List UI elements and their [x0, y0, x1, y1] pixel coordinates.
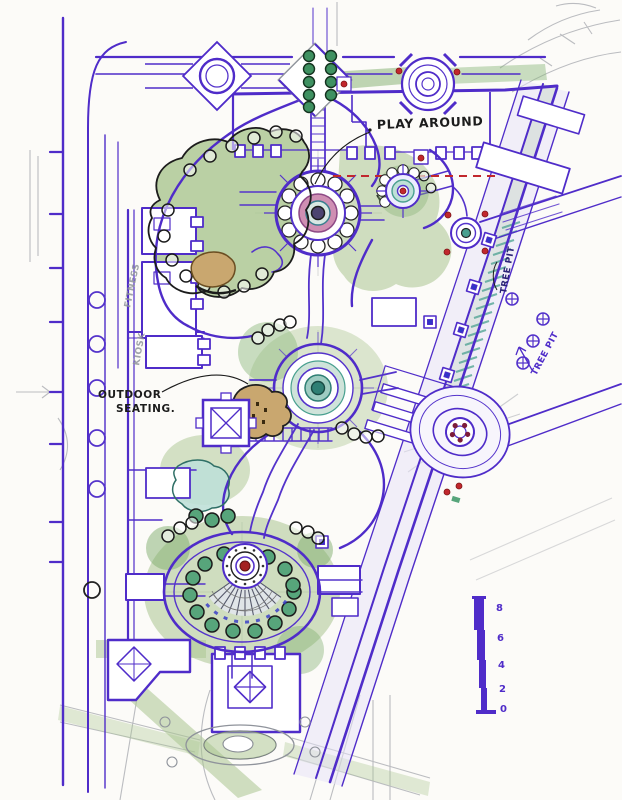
scale-label-4: 4	[498, 660, 505, 671]
outdoor-seating-label-1: OUTDOOR	[98, 389, 161, 401]
tree-pit-lower-label: TREE PIT	[530, 330, 561, 377]
center-diamond-plaza	[278, 43, 352, 117]
play-around-label: PLAY AROUND	[377, 113, 484, 132]
fitness-label: FITNESS	[123, 263, 142, 309]
east-roundabout	[396, 54, 460, 114]
scale-label-0: 0	[500, 704, 507, 715]
pergola-pavilion	[196, 393, 256, 453]
site-plan-sketch: 8 6 4 2 0 PLAY AROUND OUTDOOR SEATING. T…	[0, 0, 622, 800]
scale-bar: 8 6 4 2 0	[472, 596, 507, 715]
outdoor-seating-leader	[162, 375, 248, 392]
outdoor-seating-label-2: SEATING.	[116, 403, 175, 415]
top-intersections	[145, 42, 460, 117]
scale-label-2: 2	[499, 684, 506, 695]
site-plan-canvas: 8 6 4 2 0 PLAY AROUND OUTDOOR SEATING. T…	[0, 0, 622, 800]
scale-label-6: 6	[497, 633, 504, 644]
pond-in-canopy	[191, 252, 235, 287]
west-roundabout	[145, 42, 290, 110]
oval-focal-fountain	[223, 544, 267, 588]
scale-label-8: 8	[496, 603, 503, 614]
